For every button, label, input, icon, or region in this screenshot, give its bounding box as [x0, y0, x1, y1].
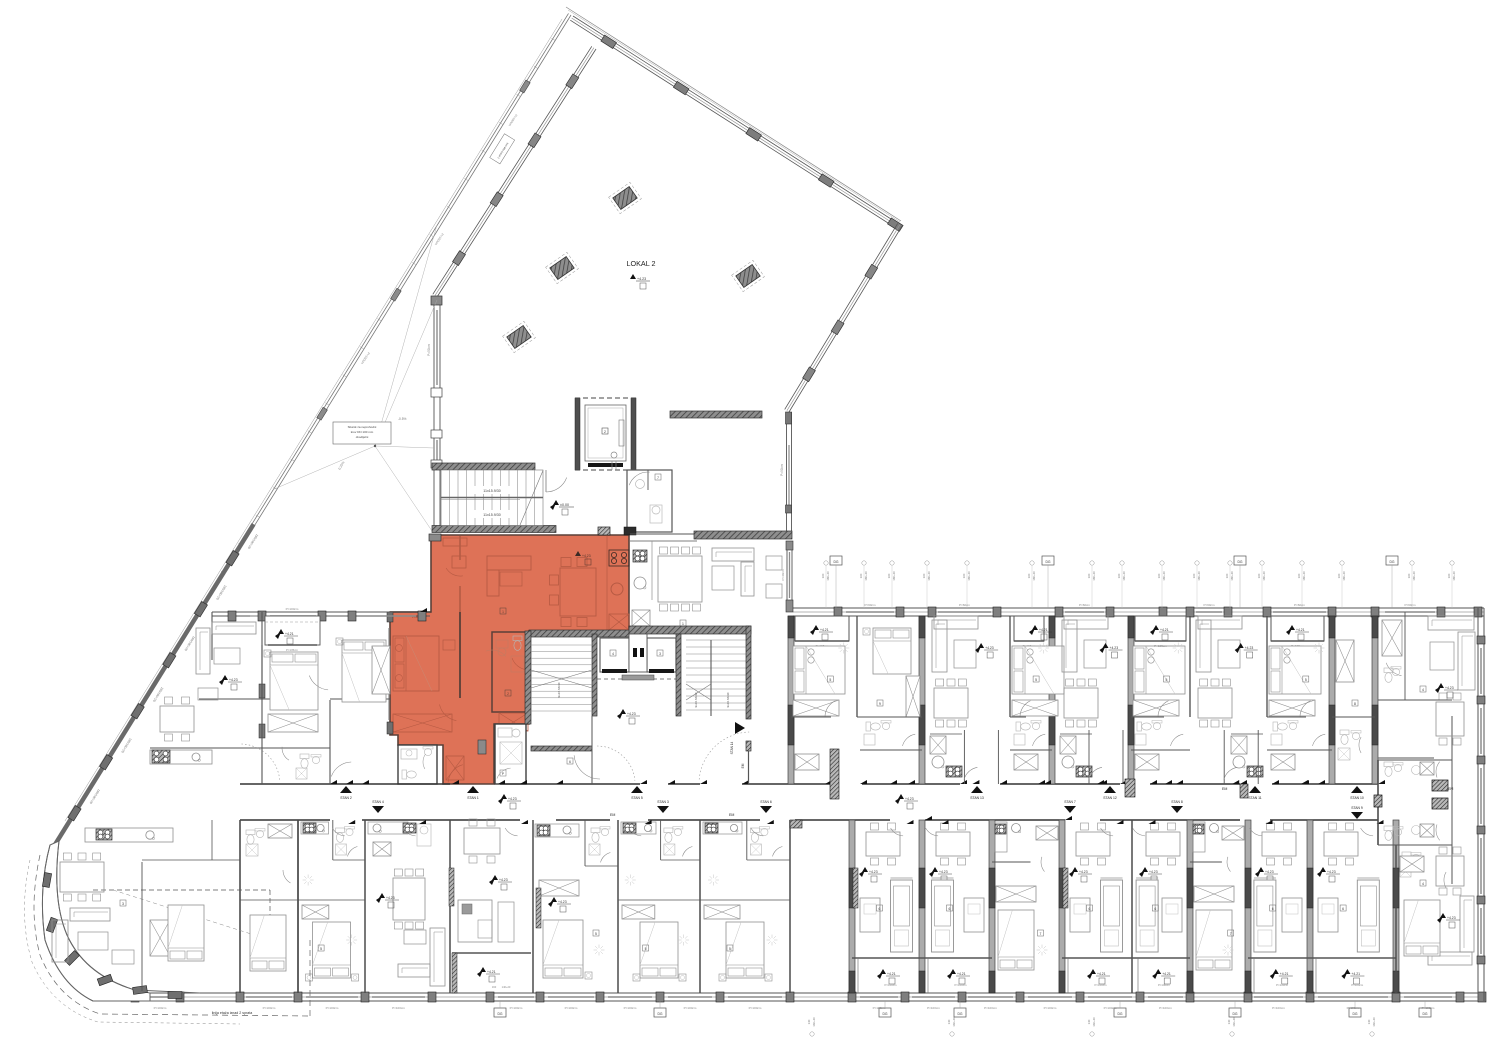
svg-text:+4.21: +4.21 — [957, 972, 966, 976]
svg-text:P=100cm: P=100cm — [624, 1006, 637, 1010]
svg-text:+4.23: +4.23 — [1447, 916, 1456, 920]
svg-text:180+20: 180+20 — [1452, 571, 1456, 581]
svg-text:STAN 13: STAN 13 — [970, 796, 984, 800]
svg-text:180+20: 180+20 — [864, 571, 868, 581]
svg-text:STAN 14: STAN 14 — [730, 741, 734, 754]
svg-text:5: 5 — [645, 947, 647, 951]
svg-text:180+20: 180+20 — [826, 571, 830, 581]
svg-text:140: 140 — [807, 1019, 811, 1024]
svg-text:5: 5 — [1305, 678, 1307, 682]
svg-text:160: 160 — [1257, 573, 1261, 578]
svg-text:+4.21: +4.21 — [1351, 972, 1360, 976]
svg-text:160: 160 — [1027, 573, 1031, 578]
svg-text:P=100cm: P=100cm — [510, 1006, 523, 1010]
svg-text:P=100cm: P=100cm — [885, 983, 898, 987]
svg-text:P=60cm: P=60cm — [1079, 603, 1091, 607]
svg-text:EM: EM — [1222, 787, 1227, 791]
svg-text:6: 6 — [1089, 907, 1091, 911]
svg-text:P=100cm: P=100cm — [1351, 983, 1364, 987]
svg-text:+4.23: +4.23 — [1149, 870, 1158, 874]
svg-text:P: P — [502, 772, 504, 776]
svg-text:+4.23: +4.23 — [985, 646, 994, 650]
svg-text:6: 6 — [1154, 907, 1156, 911]
svg-text:2: 2 — [604, 430, 606, 434]
svg-text:STAN 9: STAN 9 — [1351, 806, 1363, 810]
svg-text:-0.5%: -0.5% — [398, 417, 406, 421]
svg-text:+4.23: +4.23 — [1445, 686, 1454, 690]
svg-text:STAN 4: STAN 4 — [372, 800, 384, 804]
svg-text:P=100cm: P=100cm — [955, 983, 968, 987]
svg-text:6: 6 — [1342, 907, 1344, 911]
svg-text:+4.21: +4.21 — [487, 970, 496, 974]
svg-text:DG: DG — [657, 1012, 662, 1016]
svg-text:180+20: 180+20 — [1302, 571, 1306, 581]
svg-text:P=100cm: P=100cm — [565, 1006, 578, 1010]
svg-text:krov DN 100 mm: krov DN 100 mm — [351, 430, 374, 434]
svg-text:+4.21: +4.21 — [820, 628, 829, 632]
svg-text:+4.23: +4.23 — [939, 870, 948, 874]
svg-text:140: 140 — [1367, 1019, 1371, 1024]
svg-text:EM: EM — [610, 813, 615, 817]
svg-text:180+20: 180+20 — [1197, 571, 1201, 581]
svg-text:+4.23: +4.23 — [1245, 646, 1254, 650]
svg-text:+4.23: +4.23 — [869, 870, 878, 874]
svg-text:7: 7 — [657, 476, 659, 480]
svg-text:6: 6 — [569, 760, 571, 764]
svg-text:DG: DG — [497, 1012, 502, 1016]
svg-text:+4.23: +4.23 — [637, 277, 646, 281]
svg-text:P=100cm: P=100cm — [1044, 1006, 1057, 1010]
svg-text:180+20: 180+20 — [1412, 571, 1416, 581]
svg-text:180+20: 180+20 — [1230, 571, 1234, 581]
svg-text:3: 3 — [659, 652, 661, 656]
svg-text:DG: DG — [1232, 1012, 1237, 1016]
svg-text:160: 160 — [1297, 573, 1301, 578]
svg-text:8: 8 — [1354, 702, 1356, 706]
svg-text:P=100cm: P=100cm — [263, 1006, 276, 1010]
svg-text:+4.23: +4.23 — [558, 900, 567, 904]
svg-text:160: 160 — [492, 985, 497, 989]
svg-text:+4.23: +4.23 — [229, 678, 238, 682]
svg-text:+4.23: +4.23 — [1265, 870, 1274, 874]
svg-text:4: 4 — [1422, 882, 1424, 886]
svg-text:P=50cm: P=50cm — [427, 344, 431, 356]
svg-text:P=100cm: P=100cm — [1272, 1006, 1285, 1010]
svg-text:P=60cm: P=60cm — [959, 603, 971, 607]
svg-text:+4.23: +4.23 — [582, 554, 591, 558]
svg-text:+4.21: +4.21 — [1296, 628, 1305, 632]
svg-text:P=60cm: P=60cm — [864, 603, 876, 607]
svg-text:P=100cm: P=100cm — [927, 1006, 940, 1010]
svg-text:DG: DG — [1352, 1012, 1357, 1016]
svg-text:6: 6 — [949, 907, 951, 911]
svg-text:160: 160 — [859, 573, 863, 578]
svg-text:160: 160 — [1225, 573, 1229, 578]
svg-text:+4.23: +4.23 — [905, 797, 914, 801]
svg-text:4: 4 — [1422, 688, 1424, 692]
svg-text:STAN 2: STAN 2 — [340, 796, 352, 800]
svg-text:P=100cm: P=100cm — [154, 1006, 167, 1010]
svg-text:180+20: 180+20 — [1162, 571, 1166, 581]
svg-text:5: 5 — [1035, 678, 1037, 682]
svg-text:DG: DG — [1422, 1012, 1427, 1016]
svg-text:DG: DG — [1045, 560, 1050, 564]
svg-text:P=100cm: P=100cm — [1276, 983, 1289, 987]
svg-text:+4.21: +4.21 — [887, 972, 896, 976]
svg-text:P=100cm: P=100cm — [749, 1006, 762, 1010]
svg-text:+4.21: +4.21 — [285, 632, 294, 636]
svg-text:STAN 12: STAN 12 — [1103, 796, 1117, 800]
svg-text:+4.23: +4.23 — [386, 896, 395, 900]
svg-text:Sliunik za neprohodni: Sliunik za neprohodni — [348, 425, 377, 429]
svg-text:DG: DG — [882, 1012, 887, 1016]
svg-text:STAN 1: STAN 1 — [467, 796, 479, 800]
svg-text:+4.21: +4.21 — [1160, 628, 1169, 632]
svg-text:7: 7 — [1040, 932, 1042, 936]
svg-text:160: 160 — [922, 573, 926, 578]
svg-text:+4.23: +4.23 — [508, 797, 517, 801]
svg-text:STAN 11: STAN 11 — [1248, 796, 1261, 800]
svg-text:+4.23: +4.23 — [1110, 646, 1119, 650]
svg-text:160: 160 — [1337, 573, 1341, 578]
svg-text:5: 5 — [729, 947, 731, 951]
svg-text:P=100cm: P=100cm — [326, 1006, 339, 1010]
svg-text:180+20: 180+20 — [1262, 571, 1266, 581]
svg-text:+4.23: +4.23 — [499, 878, 508, 882]
svg-text:9x16.66/30: 9x16.66/30 — [557, 682, 561, 697]
svg-text:P=100cm: P=100cm — [684, 1006, 697, 1010]
svg-text:+4.23: +4.23 — [1327, 870, 1336, 874]
svg-text:3: 3 — [122, 902, 124, 906]
svg-text:EM: EM — [729, 813, 734, 817]
svg-text:STAN 10: STAN 10 — [1350, 796, 1364, 800]
svg-text:P=105cm: P=105cm — [1154, 644, 1167, 648]
svg-text:DG: DG — [833, 560, 838, 564]
svg-text:160+20: 160+20 — [1092, 1017, 1096, 1027]
svg-text:160: 160 — [821, 573, 825, 578]
svg-text:P=105cm: P=105cm — [286, 648, 299, 652]
svg-text:P=60cm: P=60cm — [1404, 603, 1416, 607]
svg-text:5: 5 — [595, 932, 597, 936]
svg-text:dvodijelni: dvodijelni — [356, 435, 369, 439]
svg-text:5: 5 — [320, 947, 322, 951]
svg-text:160: 160 — [1192, 573, 1196, 578]
svg-text:DG: DG — [1117, 1012, 1122, 1016]
svg-text:1: 1 — [502, 610, 504, 614]
svg-text:linija etaža iznad 2 sprata: linija etaža iznad 2 sprata — [212, 1011, 253, 1015]
svg-text:±0.00: ±0.00 — [560, 503, 569, 507]
svg-text:P=100cm: P=100cm — [1159, 1006, 1172, 1010]
svg-text:DG: DG — [1389, 560, 1394, 564]
svg-text:140+20: 140+20 — [502, 985, 511, 989]
svg-text:5: 5 — [1166, 678, 1168, 682]
svg-text:+4.21: +4.21 — [1280, 972, 1289, 976]
svg-text:160: 160 — [1407, 573, 1411, 578]
svg-text:180+20: 180+20 — [1032, 571, 1036, 581]
svg-text:9: 9 — [879, 702, 881, 706]
svg-text:P=60cm: P=60cm — [1294, 603, 1306, 607]
svg-text:DG: DG — [957, 1012, 962, 1016]
svg-text:P=100cm: P=100cm — [1158, 983, 1171, 987]
svg-text:160+20: 160+20 — [1372, 1017, 1376, 1027]
svg-text:6: 6 — [879, 907, 881, 911]
svg-text:180+20: 180+20 — [1092, 571, 1096, 581]
svg-text:9x16.66/30: 9x16.66/30 — [726, 692, 730, 707]
svg-text:160: 160 — [962, 573, 966, 578]
svg-text:STAN 6: STAN 6 — [760, 800, 772, 804]
svg-text:9x16.66/30: 9x16.66/30 — [694, 692, 698, 707]
svg-text:180+20: 180+20 — [892, 571, 896, 581]
svg-text:11x15.9/30: 11x15.9/30 — [483, 489, 501, 493]
svg-text:P=100cm: P=100cm — [984, 1006, 997, 1010]
svg-text:+4.23: +4.23 — [1079, 870, 1088, 874]
svg-text:2: 2 — [507, 692, 509, 696]
svg-text:140: 140 — [947, 1019, 951, 1024]
svg-text:160: 160 — [1447, 573, 1451, 578]
svg-text:STAN 8: STAN 8 — [1171, 800, 1183, 804]
svg-text:P=40cm: P=40cm — [781, 569, 785, 581]
svg-text:180+20: 180+20 — [1122, 571, 1126, 581]
svg-text:11x15.9/30: 11x15.9/30 — [483, 513, 501, 517]
svg-text:5: 5 — [829, 678, 831, 682]
svg-text:DG: DG — [1237, 560, 1242, 564]
svg-text:1: 1 — [682, 622, 684, 626]
svg-text:EM: EM — [741, 763, 745, 768]
svg-text:P=60cm: P=60cm — [1203, 603, 1215, 607]
svg-text:160: 160 — [1117, 573, 1121, 578]
svg-text:180+20: 180+20 — [927, 571, 931, 581]
svg-text:180+20: 180+20 — [967, 571, 971, 581]
svg-text:P=100cm: P=100cm — [286, 607, 299, 611]
svg-text:4: 4 — [612, 652, 614, 656]
svg-text:P=90cm: P=90cm — [780, 464, 784, 476]
svg-text:160: 160 — [1087, 573, 1091, 578]
svg-text:+4.23: +4.23 — [627, 712, 636, 716]
svg-text:+4.21: +4.21 — [1097, 972, 1106, 976]
svg-text:+4.21: +4.21 — [1039, 628, 1048, 632]
svg-text:LOKAL 2: LOKAL 2 — [627, 259, 656, 268]
svg-text:140: 140 — [1227, 1019, 1231, 1024]
svg-text:STAN 7: STAN 7 — [1064, 800, 1076, 804]
svg-text:160: 160 — [887, 573, 891, 578]
svg-text:EM: EM — [1448, 787, 1453, 791]
svg-text:7: 7 — [1230, 932, 1232, 936]
svg-text:160+20: 160+20 — [1232, 1017, 1236, 1027]
svg-text:160+20: 160+20 — [952, 1017, 956, 1027]
svg-text:P=100cm: P=100cm — [392, 1006, 405, 1010]
svg-text:160: 160 — [1157, 573, 1161, 578]
svg-text:140: 140 — [1087, 1019, 1091, 1024]
svg-text:P=100cm: P=100cm — [1095, 983, 1108, 987]
svg-text:160+20: 160+20 — [812, 1017, 816, 1027]
svg-text:STAN 5: STAN 5 — [631, 796, 643, 800]
svg-text:STAN 3: STAN 3 — [657, 800, 669, 804]
svg-text:6: 6 — [1272, 907, 1274, 911]
svg-text:180+20: 180+20 — [1342, 571, 1346, 581]
svg-text:+4.21: +4.21 — [1162, 972, 1171, 976]
